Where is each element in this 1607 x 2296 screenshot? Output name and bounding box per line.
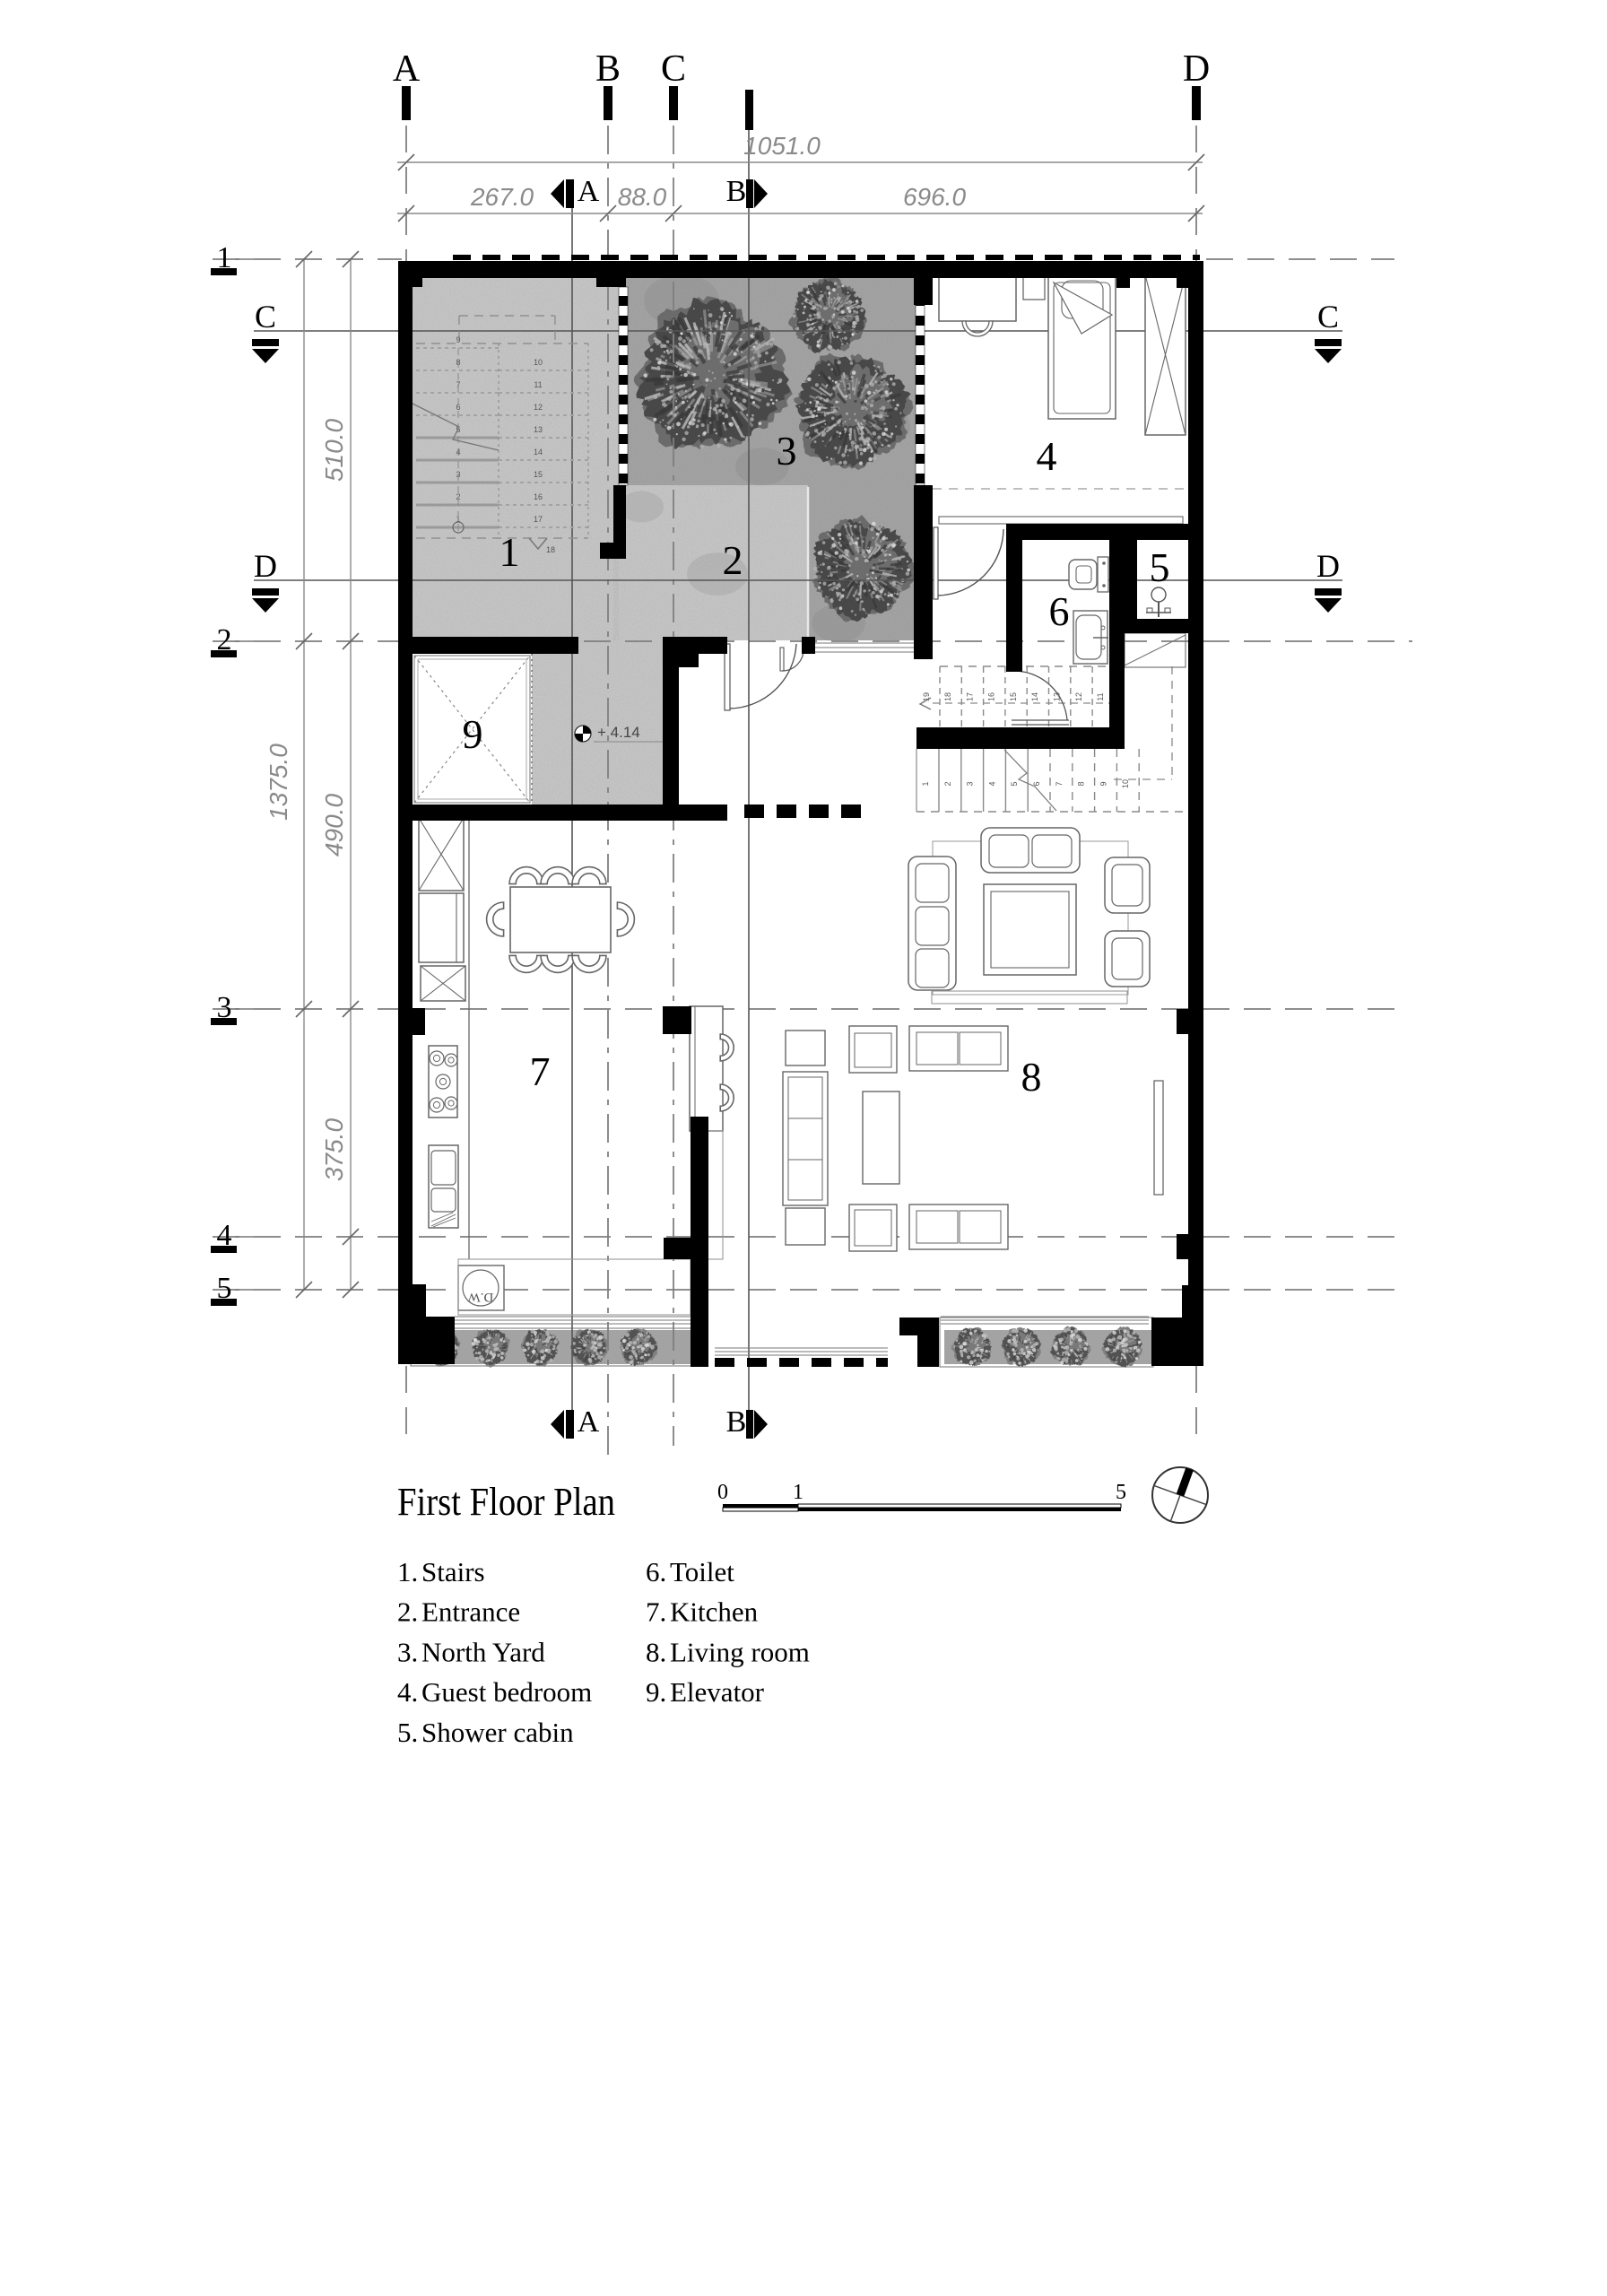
svg-text:7: 7 xyxy=(1055,781,1064,786)
svg-text:15: 15 xyxy=(1009,692,1018,701)
svg-text:1: 1 xyxy=(921,781,930,786)
svg-text:696.0: 696.0 xyxy=(903,183,966,211)
svg-text:9: 9 xyxy=(456,335,460,344)
svg-text:A: A xyxy=(393,48,421,90)
svg-text:North Yard: North Yard xyxy=(421,1636,545,1667)
svg-text:14: 14 xyxy=(534,448,543,457)
svg-text:C: C xyxy=(1317,299,1339,335)
svg-text:Guest bedroom: Guest bedroom xyxy=(421,1676,592,1708)
svg-text:9: 9 xyxy=(463,711,483,757)
svg-text:11: 11 xyxy=(1096,692,1105,700)
svg-text:18: 18 xyxy=(546,545,555,554)
svg-text:15: 15 xyxy=(534,470,543,479)
svg-text:D: D xyxy=(1316,548,1340,584)
svg-text:3: 3 xyxy=(777,428,797,474)
svg-text:5: 5 xyxy=(1010,781,1019,786)
svg-text:10: 10 xyxy=(1121,779,1130,788)
svg-text:267.0: 267.0 xyxy=(470,183,534,211)
svg-text:16: 16 xyxy=(987,692,996,701)
svg-text:B: B xyxy=(726,175,747,208)
svg-text:8.: 8. xyxy=(646,1636,666,1667)
svg-text:9.: 9. xyxy=(646,1676,666,1708)
svg-text:B: B xyxy=(726,1405,747,1439)
svg-text:7.: 7. xyxy=(646,1596,666,1628)
svg-text:2.: 2. xyxy=(397,1596,418,1628)
svg-text:14: 14 xyxy=(1030,692,1039,701)
svg-text:1: 1 xyxy=(793,1481,803,1504)
svg-text:2: 2 xyxy=(943,781,952,786)
svg-text:A: A xyxy=(578,1405,600,1439)
svg-text:6: 6 xyxy=(1049,588,1070,634)
svg-text:1: 1 xyxy=(499,529,520,575)
svg-text:First Floor Plan: First Floor Plan xyxy=(397,1480,615,1524)
svg-text:13: 13 xyxy=(534,425,543,434)
svg-text:510.0: 510.0 xyxy=(320,419,348,482)
svg-text:16: 16 xyxy=(534,492,543,501)
svg-text:+ 4.14: + 4.14 xyxy=(597,724,640,741)
svg-text:Shower cabin: Shower cabin xyxy=(421,1717,574,1748)
svg-text:4.: 4. xyxy=(397,1676,418,1708)
svg-text:18: 18 xyxy=(943,692,952,701)
svg-text:1375.0: 1375.0 xyxy=(265,744,292,821)
svg-text:6.: 6. xyxy=(646,1556,666,1587)
svg-text:2: 2 xyxy=(723,537,743,583)
svg-text:4: 4 xyxy=(1037,433,1057,479)
svg-text:4: 4 xyxy=(987,781,996,786)
svg-text:1.: 1. xyxy=(397,1556,418,1587)
svg-text:0: 0 xyxy=(717,1481,728,1504)
svg-text:5: 5 xyxy=(1150,544,1170,590)
svg-text:11: 11 xyxy=(534,380,542,389)
svg-text:Toilet: Toilet xyxy=(670,1556,734,1587)
svg-text:7: 7 xyxy=(530,1048,551,1094)
svg-text:Kitchen: Kitchen xyxy=(670,1596,759,1628)
svg-text:17: 17 xyxy=(534,515,543,524)
svg-text:A: A xyxy=(578,175,600,208)
svg-text:Stairs: Stairs xyxy=(421,1556,485,1587)
svg-text:490.0: 490.0 xyxy=(320,794,348,857)
svg-text:9: 9 xyxy=(1099,781,1108,786)
svg-text:10: 10 xyxy=(534,358,543,367)
svg-text:Entrance: Entrance xyxy=(421,1596,520,1628)
svg-text:8: 8 xyxy=(1077,781,1086,786)
svg-text:Living room: Living room xyxy=(670,1636,810,1667)
svg-text:3.: 3. xyxy=(397,1636,418,1667)
svg-text:88.0: 88.0 xyxy=(618,183,667,211)
svg-text:17: 17 xyxy=(965,692,974,701)
svg-text:C: C xyxy=(661,48,686,90)
svg-text:8: 8 xyxy=(1021,1054,1042,1100)
svg-text:D: D xyxy=(1183,48,1210,90)
svg-text:Elevator: Elevator xyxy=(670,1676,765,1708)
svg-text:D: D xyxy=(254,548,277,584)
svg-text:12: 12 xyxy=(1074,692,1083,701)
svg-text:D.W: D.W xyxy=(467,1290,494,1304)
svg-text:5.: 5. xyxy=(397,1717,418,1748)
svg-text:3: 3 xyxy=(966,781,975,786)
svg-text:1051.0: 1051.0 xyxy=(743,132,821,160)
svg-text:B: B xyxy=(595,48,621,90)
svg-text:5: 5 xyxy=(1116,1481,1126,1504)
svg-text:12: 12 xyxy=(534,403,543,412)
svg-text:C: C xyxy=(255,299,276,335)
svg-text:375.0: 375.0 xyxy=(320,1118,348,1181)
